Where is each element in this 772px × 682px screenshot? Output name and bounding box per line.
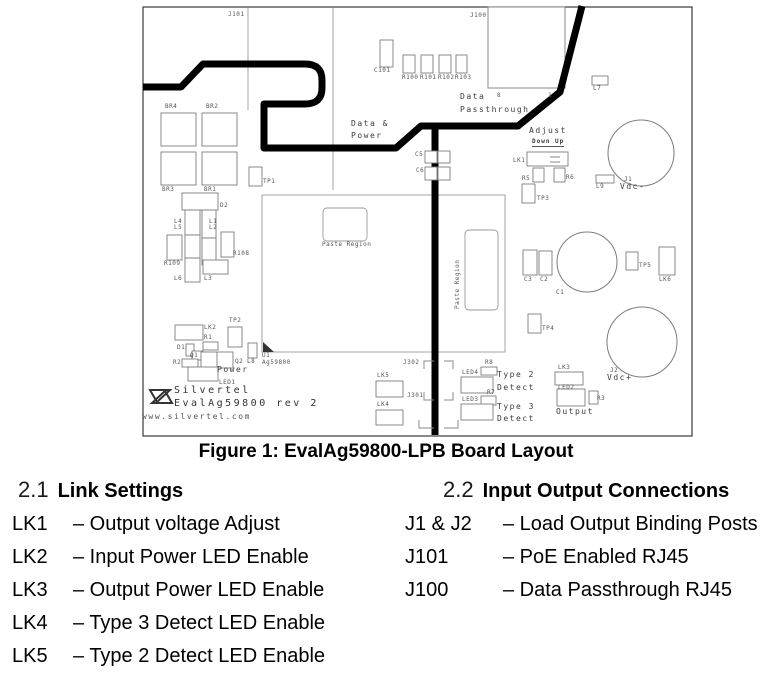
silkscreen-label: TP1 [263,179,275,185]
silkscreen-label: R8 [485,360,493,366]
definition-row: J100– Data Passthrough RJ45 [405,579,758,601]
silkscreen-label: Data [460,93,485,101]
definition-term: LK1 [12,513,73,535]
silkscreen-label: Detect [497,384,535,392]
definition-description: – Output voltage Adjust [73,513,280,535]
silkscreen-label: L2 [209,225,217,231]
section-title: Link Settings [58,480,184,503]
silkscreen-label: 1 [548,93,552,99]
definition-term: LK5 [12,645,73,667]
section-number: 2.2 [443,477,474,503]
section-title: Input Output Connections [483,480,730,503]
silkscreen-label: TP4 [542,326,554,332]
silkscreen-label: LK3 [558,365,570,371]
definition-term: J101 [405,546,503,568]
silkscreen-label: R1 [204,335,212,341]
definition-description: – Input Power LED Enable [73,546,309,568]
silkscreen-label: Vdc- [620,183,645,191]
silkscreen-label: Power [351,132,383,140]
silkscreen-label: Data & [351,120,389,128]
definition-description: – PoE Enabled RJ45 [503,546,689,568]
io-connections-list: J1 & J2– Load Output Binding PostsJ101– … [405,513,758,612]
silkscreen-label: Adjust [529,127,567,135]
document-page: J101J100C101R100R101R102R103L7Data81Pass… [0,0,772,682]
silkscreen-label: Silvertel [174,386,251,396]
silkscreen-label: D2 [220,203,228,209]
definition-row: J101– PoE Enabled RJ45 [405,546,758,568]
silkscreen-label: C5 [415,152,423,158]
silkscreen-label: Vdc+ [607,374,632,382]
silkscreen-label: R109 [164,261,180,267]
silkscreen-label: L5 [174,225,182,231]
silkscreen-label: L6 [174,276,182,282]
silkscreen-label: Q1 [190,353,198,359]
silkscreen-label: D1 [177,345,185,351]
section-heading-link-settings: 2.1 Link Settings [18,477,183,503]
silkscreen-label: J100 [470,13,486,19]
silkscreen-label: L9 [596,184,604,190]
silkscreen-label: LK5 [377,373,389,379]
silkscreen-label: C1 [556,290,564,296]
silkscreen-label: Type 3 [497,403,535,411]
silkscreen-label: TP2 [229,318,241,324]
section-number: 2.1 [18,477,49,503]
definition-description: – Load Output Binding Posts [503,513,758,535]
silkscreen-label: LED4 [462,370,478,376]
definition-term: LK2 [12,546,73,568]
definition-row: LK2– Input Power LED Enable [12,546,325,568]
silkscreen-label: Type 2 [497,371,535,379]
silkscreen-label: R101 [420,75,436,81]
definition-row: LK4– Type 3 Detect LED Enable [12,612,325,634]
silkscreen-label: R100 [402,75,418,81]
silkscreen-label: C6 [416,168,424,174]
silkscreen-label: EvalAg59800 rev 2 [174,399,319,409]
silkscreen-label: C3 [524,277,532,283]
silkscreen-label: TP3 [537,196,549,202]
silkscreen-label: TP5 [639,263,651,269]
definition-term: LK4 [12,612,73,634]
silkscreen-label: Detect [497,415,535,423]
silkscreen-label: R108 [233,251,249,257]
definition-description: – Type 2 Detect LED Enable [73,645,325,667]
silkscreen-label: C2 [540,277,548,283]
silkscreen-label: R3 [597,396,605,402]
definition-row: LK3– Output Power LED Enable [12,579,325,601]
silkscreen-label: 8 [497,93,501,99]
definition-row: J1 & J2– Load Output Binding Posts [405,513,758,535]
silkscreen-label: LED3 [462,397,478,403]
silkscreen-label: R103 [455,75,471,81]
section-heading-io-connections: 2.2 Input Output Connections [443,477,729,503]
definition-description: – Data Passthrough RJ45 [503,579,732,601]
silkscreen-label: Paste Region [322,242,371,248]
silkscreen-label: Ag59800 [262,360,291,366]
silkscreen-label: J301 [407,393,423,399]
silkscreen-label: Paste Region [455,260,461,309]
silkscreen-label: J101 [228,12,244,18]
silkscreen-label: R6 [566,175,574,181]
silkscreen-label: LK6 [659,277,671,283]
silkscreen-label: R7 [487,390,495,396]
silkscreen-label: Down Up [532,139,564,147]
silkscreen-label: R2 [173,360,181,366]
silkscreen-label: R102 [438,75,454,81]
definition-description: – Type 3 Detect LED Enable [73,612,325,634]
silkscreen-label: Output [556,408,594,416]
silkscreen-label: LK4 [377,402,389,408]
silkscreen-label: Power [217,366,249,374]
silkscreen-label: BR2 [206,104,218,110]
silkscreen-label: R5 [522,176,530,182]
silkscreen-label: L7 [593,86,601,92]
silkscreen-label: www.silvertel.com [142,413,251,421]
link-settings-list: LK1– Output voltage AdjustLK2– Input Pow… [12,513,325,678]
silkscreen-label: J302 [403,360,419,366]
definition-description: – Output Power LED Enable [73,579,324,601]
silkscreen-label: C101 [374,68,390,74]
silkscreen-label: L3 [204,276,212,282]
silkscreen-label: BR3 [162,187,174,193]
silkscreen-label: LK2 [204,325,216,331]
definition-row: LK5– Type 2 Detect LED Enable [12,645,325,667]
silkscreen-label: LK1 [513,158,525,164]
definition-term: LK3 [12,579,73,601]
silkscreen-label: L8 [247,359,255,365]
definition-term: J100 [405,579,503,601]
silkscreen-label: Passthrough [460,106,529,114]
definition-term: J1 & J2 [405,513,503,535]
silkscreen-label: BR1 [204,187,216,193]
silkscreen-label: BR4 [165,104,177,110]
figure-caption: Figure 1: EvalAg59800-LPB Board Layout [0,441,772,463]
silkscreen-label: LED2 [558,385,574,391]
definition-row: LK1– Output voltage Adjust [12,513,325,535]
